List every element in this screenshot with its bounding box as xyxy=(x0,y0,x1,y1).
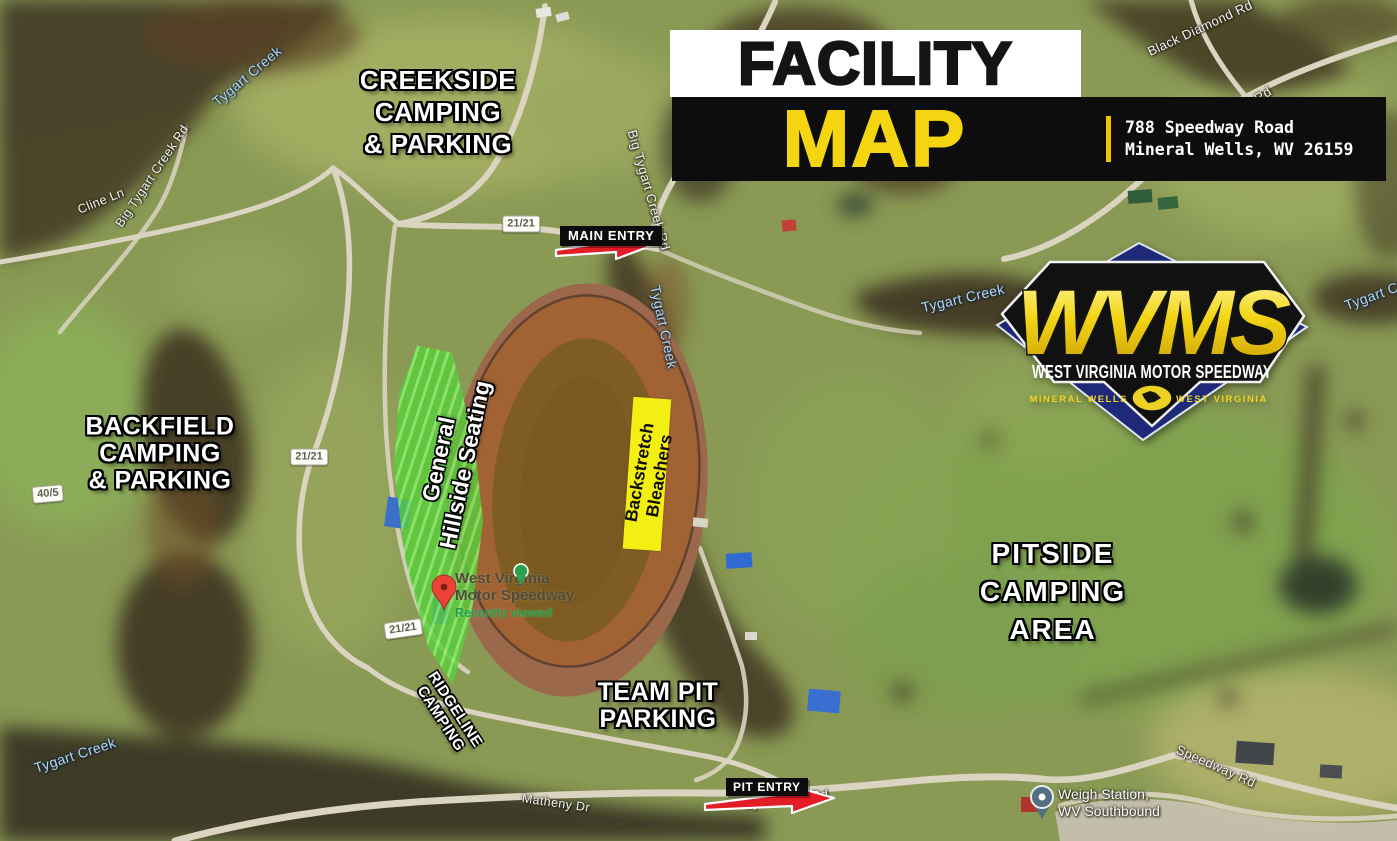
logo-initials: WVMS xyxy=(1017,272,1291,374)
pit-entry-tag: PIT ENTRY xyxy=(726,778,808,796)
facility-address: 788 Speedway Road Mineral Wells, WV 2615… xyxy=(1125,117,1353,161)
recently-viewed-pin-icon xyxy=(514,564,528,585)
main-entry-tag: MAIN ENTRY xyxy=(560,226,662,246)
speedway-map-pin-icon xyxy=(432,575,456,610)
logo-city: MINERAL WELLS xyxy=(1030,394,1129,405)
logo-state: WEST VIRGINIA xyxy=(1176,394,1268,405)
map-title: MAP xyxy=(672,97,1077,181)
header-title-bottom-box: MAP 788 Speedway Road Mineral Wells, WV … xyxy=(672,97,1386,181)
logo-name: WEST VIRGINIA MOTOR SPEEDWAY xyxy=(1032,362,1272,382)
wvms-logo: WVMS WEST VIRGINIA MOTOR SPEEDWAY MINERA… xyxy=(988,236,1310,448)
facility-map: General Hillside Seating Backstretch Ble… xyxy=(0,0,1397,841)
address-line1: 788 Speedway Road xyxy=(1125,117,1353,139)
header-divider xyxy=(1106,116,1111,162)
facility-title: FACILITY xyxy=(738,34,1013,94)
header-title-top-box: FACILITY xyxy=(670,30,1081,97)
weigh-station-pin-icon xyxy=(1031,786,1053,819)
address-line2: Mineral Wells, WV 26159 xyxy=(1125,139,1353,161)
